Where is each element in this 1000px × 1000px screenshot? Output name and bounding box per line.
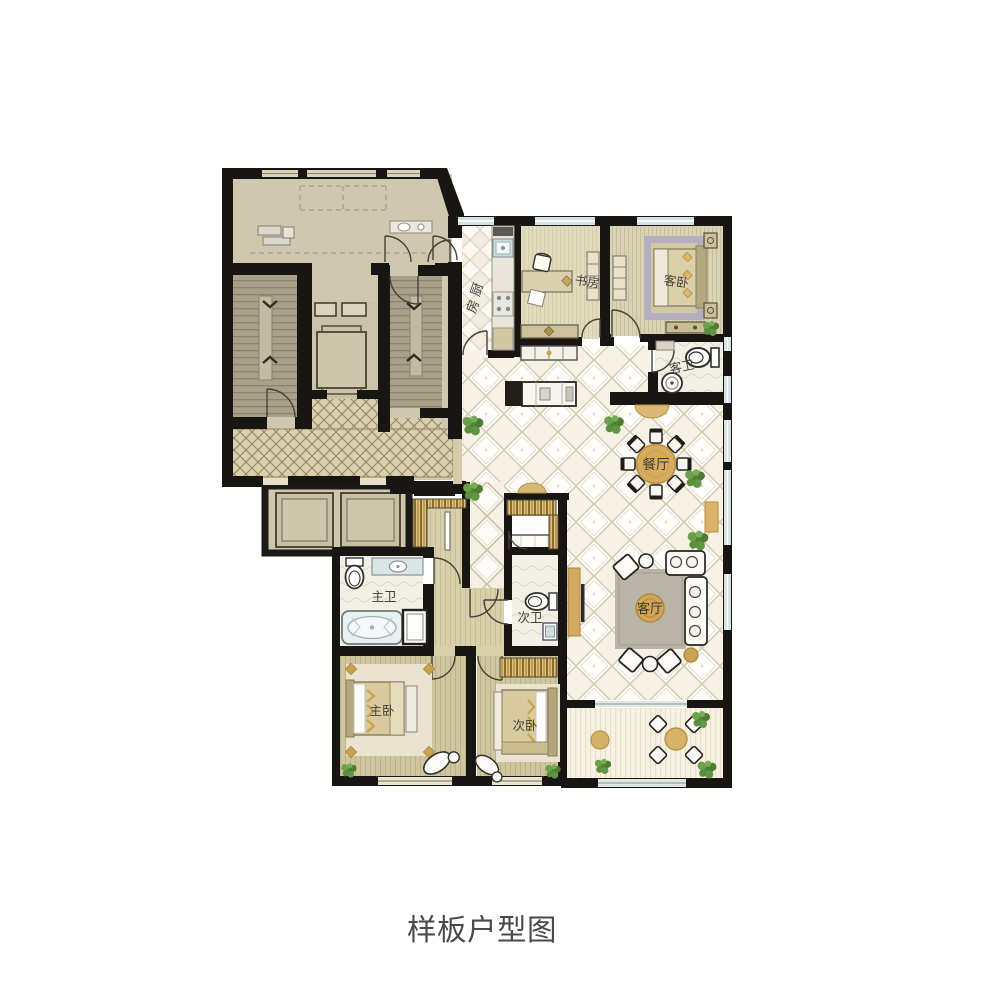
- svg-text:次卫: 次卫: [517, 611, 542, 625]
- svg-text:样板户型图: 样板户型图: [407, 914, 557, 947]
- svg-text:主卫: 主卫: [371, 590, 396, 604]
- svg-text:客厅: 客厅: [637, 601, 663, 616]
- svg-text:主卧: 主卧: [369, 704, 394, 718]
- svg-text:次卧: 次卧: [512, 719, 537, 733]
- svg-text:餐厅: 餐厅: [643, 457, 670, 472]
